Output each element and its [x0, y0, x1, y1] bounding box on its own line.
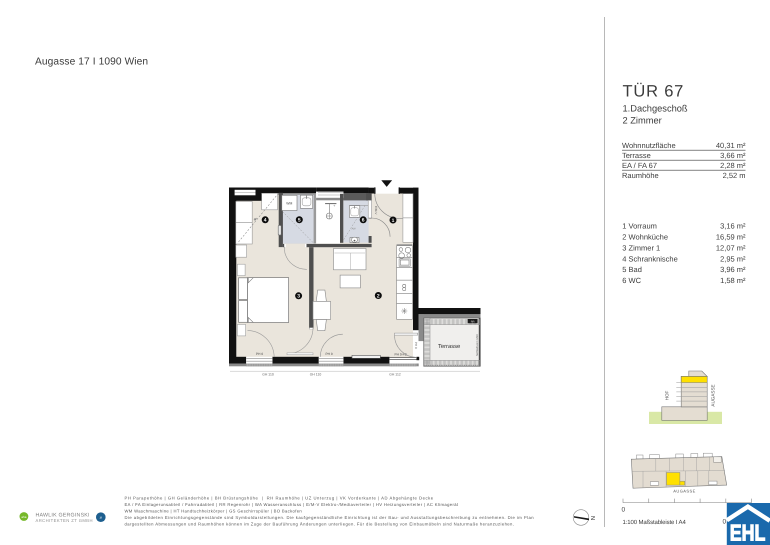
svg-text:Sichtschutz H 250: Sichtschutz H 250 [476, 334, 479, 356]
svg-text:GH 110: GH 110 [262, 372, 274, 376]
svg-text:E/M-V: E/M-V [374, 206, 378, 214]
svg-text:3 Zimmer 1: 3 Zimmer 1 [622, 243, 660, 252]
svg-text:aha: aha [21, 515, 26, 519]
svg-text:1: 1 [392, 218, 395, 224]
svg-text:+: + [333, 204, 335, 208]
svg-text:PH 0: PH 0 [414, 342, 418, 349]
svg-text:6: 6 [362, 218, 365, 224]
svg-text:dargestellten Abmessungen und: dargestellten Abmessungen und Raumhöhen … [125, 521, 515, 526]
svg-text:N: N [589, 516, 595, 520]
svg-text:Wohnnutzfläche: Wohnnutzfläche [622, 141, 676, 150]
svg-text:1,58 m²: 1,58 m² [720, 276, 746, 285]
svg-text:Raumhöhe: Raumhöhe [622, 171, 659, 180]
svg-text:4 Schranknische: 4 Schranknische [622, 254, 677, 263]
svg-text:AW: AW [352, 227, 357, 230]
svg-text:40,31 m²: 40,31 m² [716, 141, 746, 150]
svg-text:4: 4 [264, 218, 267, 224]
svg-text:12,07 m²: 12,07 m² [716, 243, 746, 252]
svg-text:1.Dachgeschoß: 1.Dachgeschoß [623, 104, 688, 114]
svg-text:0: 0 [723, 519, 727, 526]
svg-text:GH 110: GH 110 [310, 372, 322, 376]
svg-text:3,96 m²: 3,96 m² [720, 265, 746, 274]
svg-text:EHL: EHL [730, 519, 766, 545]
svg-text:3: 3 [297, 294, 300, 300]
svg-text:PH Parapethöhe | GH Geländerhö: PH Parapethöhe | GH Geländerhöhe | BH Br… [125, 495, 434, 500]
svg-text:0: 0 [622, 507, 626, 514]
svg-text:3,66 m²: 3,66 m² [720, 151, 746, 160]
svg-text:WM: WM [286, 201, 292, 205]
svg-text:5: 5 [298, 218, 301, 224]
svg-text:EA / FA Einlagerunsabteil / Fa: EA / FA Einlagerunsabteil / Fahrradabtei… [125, 502, 459, 507]
svg-text:1:100 Maßstableiste I A4: 1:100 Maßstableiste I A4 [623, 519, 687, 526]
svg-text:PH 0: PH 0 [326, 352, 333, 356]
svg-text:2 Wohnküche: 2 Wohnküche [622, 233, 668, 242]
svg-text:ARCHITEKTEN ZT GMBH: ARCHITEKTEN ZT GMBH [36, 518, 93, 523]
svg-text:2 Zimmer: 2 Zimmer [623, 116, 662, 126]
svg-text:Terrasse: Terrasse [622, 151, 651, 160]
svg-text:Augasse 17 I 1090 Wien: Augasse 17 I 1090 Wien [35, 57, 148, 68]
svg-text:2,28 m²: 2,28 m² [720, 161, 746, 170]
svg-text:Terrasse: Terrasse [438, 344, 460, 350]
svg-text:5 Bad: 5 Bad [622, 265, 642, 274]
svg-text:AUGASSE: AUGASSE [673, 488, 696, 493]
svg-text:1 Vorraum: 1 Vorraum [622, 222, 657, 231]
svg-text:2,52 m: 2,52 m [723, 171, 746, 180]
svg-text:2,95 m²: 2,95 m² [720, 254, 746, 263]
svg-text:zt: zt [100, 516, 103, 520]
svg-text:Die abgebildeten Einrichtungsg: Die abgebildeten Einrichtungsgegenstände… [125, 515, 535, 520]
svg-text:WM Waschmaschine | HT Handtuch: WM Waschmaschine | HT Handtuchheizkörper… [125, 508, 303, 513]
svg-text:3,16 m²: 3,16 m² [720, 222, 746, 231]
svg-text:RR: RR [471, 321, 475, 324]
svg-text:HOF: HOF [665, 390, 670, 400]
svg-text:GH 112: GH 112 [389, 372, 401, 376]
svg-text:16,59 m²: 16,59 m² [716, 233, 746, 242]
svg-text:PH 0: PH 0 [256, 352, 263, 356]
svg-text:TÜR 67: TÜR 67 [623, 83, 685, 101]
svg-text:2: 2 [377, 293, 380, 299]
svg-text:EA / FA 67: EA / FA 67 [622, 161, 657, 170]
svg-text:AUGASSE: AUGASSE [711, 384, 716, 406]
svg-text:6 WC: 6 WC [622, 276, 641, 285]
